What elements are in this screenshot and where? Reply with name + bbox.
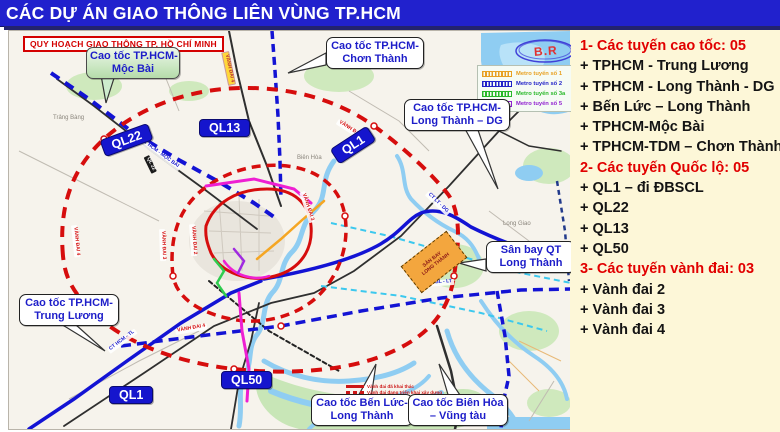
br-annotation: B.R: [514, 37, 572, 65]
callout-moc-bai: Cao tốc TP.HCM-Mộc Bài: [86, 47, 180, 79]
section-header-ring-roads: 3- Các tuyến vành đai: 03: [570, 259, 780, 279]
badge-ql13: QL13: [199, 119, 250, 137]
list-item: + QL50: [570, 239, 780, 259]
callout-san-bay: Sân bay QTLong Thành: [486, 241, 572, 273]
br-text: B.R: [534, 43, 559, 59]
section-header-national-roads: 2- Các tuyến Quốc lộ: 05: [570, 158, 780, 178]
metro-line1-label: Metro tuyến số 1: [516, 71, 562, 77]
metro-line3a-swatch: [482, 91, 512, 97]
list-item: + QL13: [570, 219, 780, 239]
list-item: + TPHCM-TDM – Chơn Thành: [570, 137, 780, 157]
metro-line2-label: Metro tuyến số 2: [516, 81, 562, 87]
metro-line5-label: Metro tuyến số 5: [516, 101, 562, 107]
list-item: + QL1 – đi ĐBSCL: [570, 178, 780, 198]
list-item: + TPHCM - Trung Lương: [570, 56, 780, 76]
callout-chon-thanh: Cao tốc TP.HCM-Chơn Thành: [326, 37, 424, 69]
metro-line3a-label: Metro tuyến số 3a: [516, 91, 565, 97]
callout-trung-luong: Cao tốc TP.HCM-Trung Lương: [19, 294, 119, 326]
list-item: + Vành đai 3: [570, 300, 780, 320]
list-item: + TPHCM-Mộc Bài: [570, 117, 780, 137]
list-item: + Vành đai 4: [570, 320, 780, 340]
list-item: + Vành đai 2: [570, 280, 780, 300]
callout-ben-luc: Cao tốc Bến Lức-Long Thành: [311, 394, 413, 426]
ring-legend-label: Vành đai đã khai thác: [367, 384, 414, 389]
list-item: + QL22: [570, 198, 780, 218]
route-tag-ring2: VÀNH ĐAI 2: [190, 224, 198, 257]
page-title: CÁC DỰ ÁN GIAO THÔNG LIÊN VÙNG TP.HCM: [0, 0, 780, 26]
title-bar: CÁC DỰ ÁN GIAO THÔNG LIÊN VÙNG TP.HCM: [0, 0, 780, 27]
callout-bien-hoa-vung-tau: Cao tốc Biên Hòa– Vũng tàu: [408, 394, 508, 426]
summary-panel: 1- Các tuyến cao tốc: 05 + TPHCM - Trung…: [570, 30, 780, 432]
section-header-expressways: 1- Các tuyến cao tốc: 05: [570, 36, 780, 56]
place-long-giao: Long Giao: [503, 221, 531, 227]
list-item: + Bến Lức – Long Thành: [570, 97, 780, 117]
callout-long-thanh-dg: Cao tốc TP.HCM-Long Thành – DG: [404, 99, 510, 131]
place-trang-bang: Trảng Bàng: [53, 115, 84, 121]
list-item: + TPHCM - Long Thành - DG: [570, 77, 780, 97]
transport-map: CT HCM - MỘC BÀI CT HCM - TL CT LT - DG …: [8, 30, 572, 430]
metro-line2-swatch: [482, 81, 512, 87]
route-tag-ring3-west: VÀNH ĐAI 3: [160, 229, 167, 262]
metro-line1-swatch: [482, 71, 512, 77]
airport-label: SÂN BAY LONG THÀNH: [417, 247, 451, 277]
ring-solid-swatch: [346, 385, 364, 388]
place-bien-hoa: Biên Hòa: [297, 155, 322, 161]
badge-ql50: QL50: [221, 371, 272, 389]
badge-ql1-south: QL1: [109, 386, 153, 404]
